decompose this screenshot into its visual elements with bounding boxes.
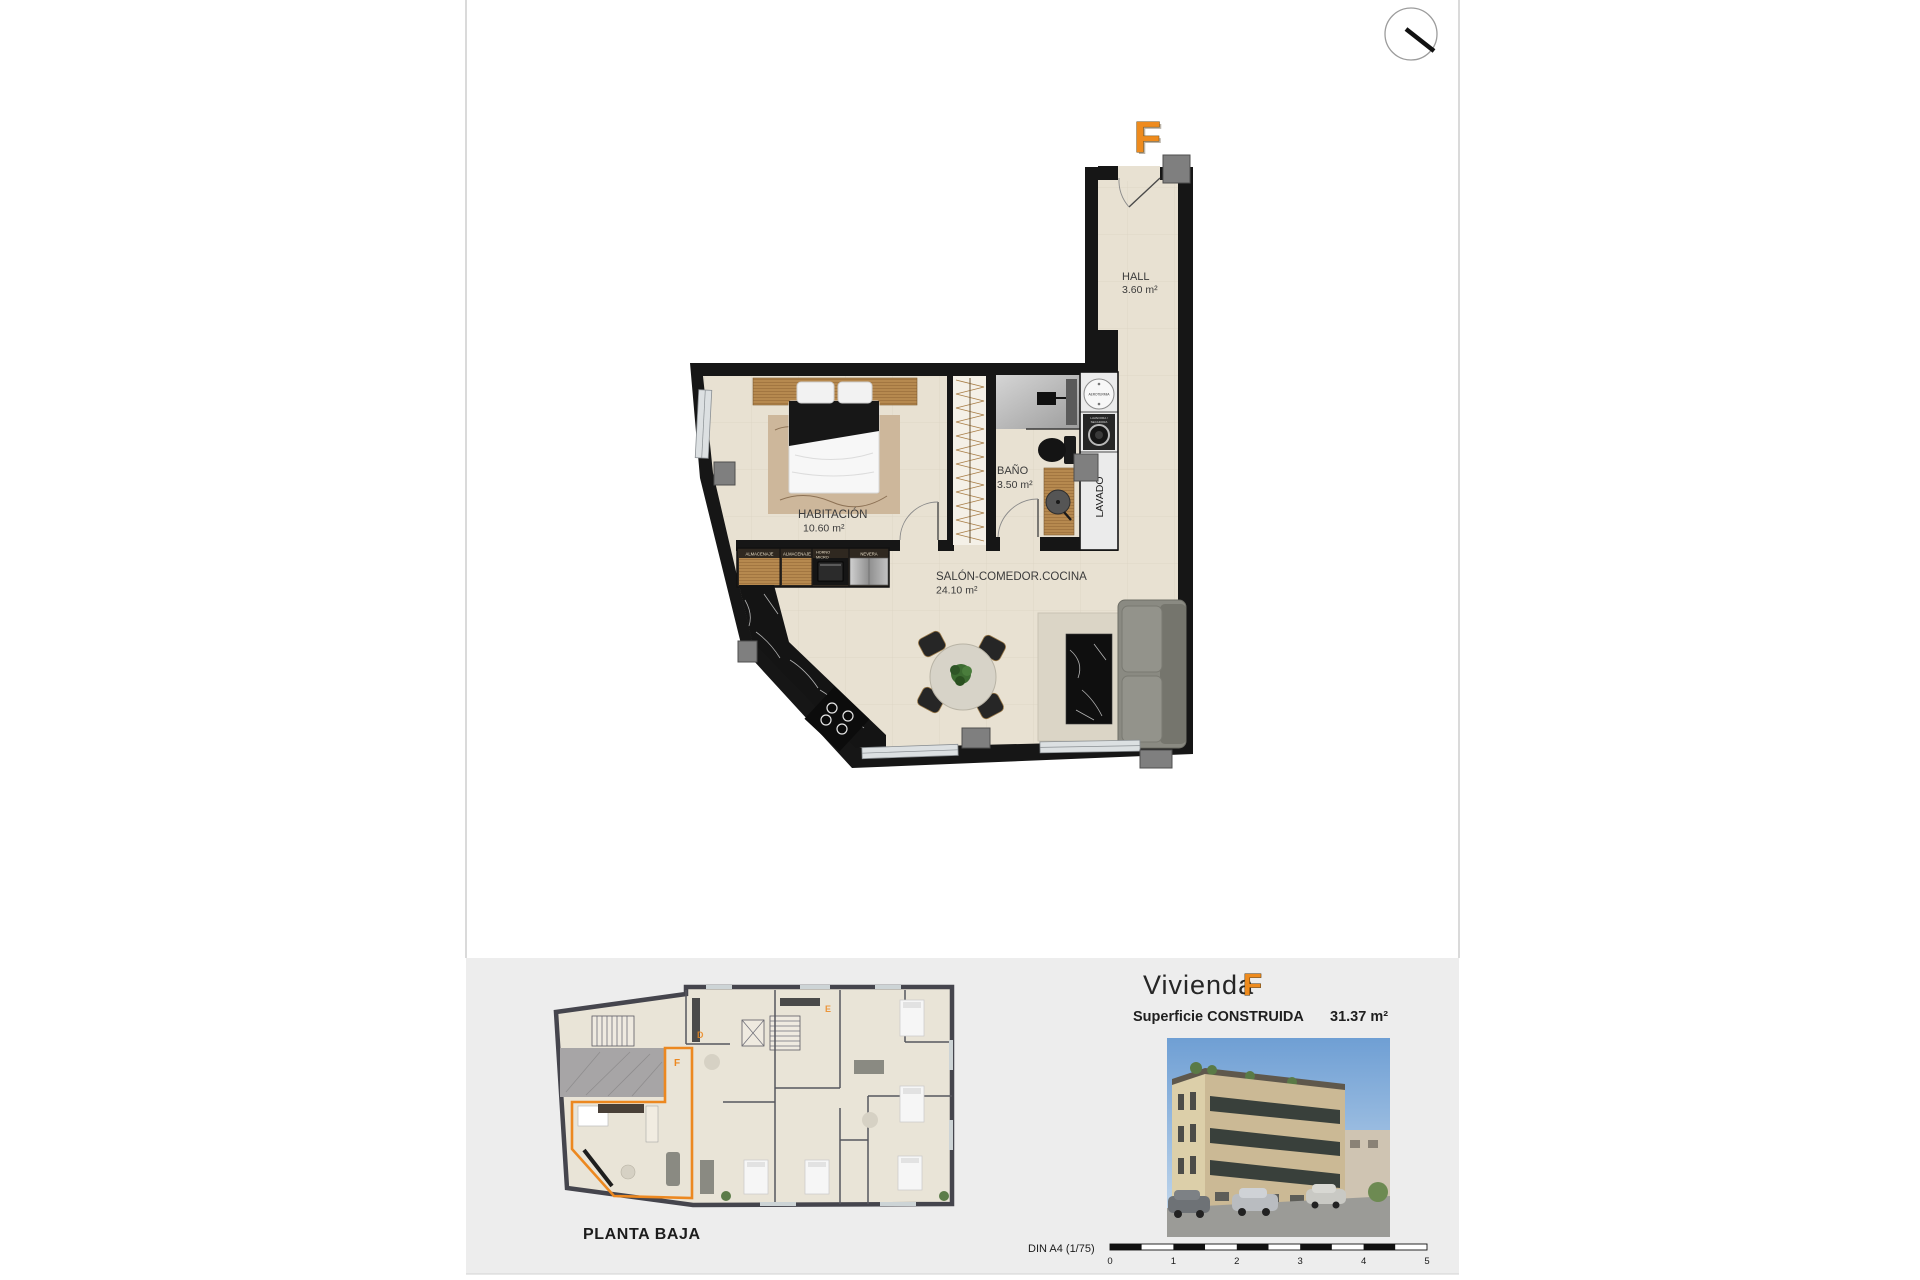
washer-dryer-unit: LAVADORA / SECADORA (1083, 414, 1115, 450)
bedroom-furniture (753, 378, 917, 514)
pillar-diagonal (738, 641, 757, 662)
scale-tick: 4 (1361, 1256, 1366, 1267)
aerotermia-unit: AEROTERMIA (1084, 379, 1114, 409)
pillar-top-right (1163, 155, 1190, 183)
wardrobe-right-wall (986, 376, 996, 551)
scale-tick: 5 (1424, 1256, 1429, 1267)
scale-tick: 1 (1171, 1256, 1176, 1267)
sheet-canvas: AEROTERMIA LAVADORA / SECADORA LAVADO (0, 0, 1920, 1280)
unit-letter-footer: F (1243, 967, 1262, 1002)
svg-text:F: F (1134, 113, 1161, 162)
shower-column (1066, 379, 1077, 425)
kitchen-cabinets: ALMACENAJE ALMACENAJE HORNO MICRO NEVERA (737, 548, 889, 587)
unit-letter-main: F F (1134, 113, 1163, 164)
bath-wall-stub (986, 537, 1000, 551)
plan-sheet: AEROTERMIA LAVADORA / SECADORA LAVADO (0, 0, 1920, 1280)
hall-area: 3.60 m² (1122, 284, 1158, 296)
surface-label: Superficie CONSTRUIDA (1133, 1009, 1304, 1025)
hall-top-wall-stub (1098, 166, 1118, 180)
shower-head-icon (1037, 392, 1056, 405)
building-photo (1167, 1038, 1390, 1237)
mini-letter-e: E (825, 1004, 831, 1014)
cabinet-label-3a: HORNO (816, 551, 830, 555)
mini-plan-title: PLANTA BAJA (583, 1226, 701, 1243)
pillar-laundry (1074, 454, 1098, 481)
mini-letter-f: F (674, 1058, 680, 1069)
north-arrow-icon (1385, 8, 1437, 60)
bed (789, 382, 879, 493)
wardrobe (953, 376, 986, 545)
living-label: SALÓN-COMEDOR.COCINA (936, 570, 1087, 583)
living-area: 24.10 m² (936, 585, 978, 597)
aerotermia-label: AEROTERMIA (1088, 393, 1110, 397)
pillow (838, 382, 872, 403)
hall-wall-pier (1092, 330, 1118, 378)
cabinet-storage-2 (782, 558, 812, 585)
wardrobe-left-wall (947, 376, 954, 545)
pillar-left (714, 462, 735, 485)
cabinet-label-2: ALMACENAJE (783, 552, 811, 557)
main-floor-plan: AEROTERMIA LAVADORA / SECADORA LAVADO (690, 113, 1193, 768)
scale-segments (1110, 1244, 1427, 1250)
bath-label: BAÑO (997, 464, 1029, 477)
living-furniture (1038, 600, 1186, 748)
cabinet-label-4: NEVERA (860, 552, 877, 557)
washer-label-2: SECADORA (1091, 420, 1108, 424)
scale-tick: 3 (1298, 1256, 1303, 1267)
coffee-table (1066, 634, 1112, 724)
photo-window-bands (1210, 1096, 1340, 1188)
bath-area: 3.50 m² (997, 479, 1033, 491)
vanity-sink (1044, 468, 1074, 535)
scale-label: DIN A4 (1/75) (1028, 1243, 1095, 1255)
mini-overview-plan: F D E (556, 985, 953, 1206)
mini-letter-d: D (697, 1030, 704, 1040)
pillar-bottom-center (962, 728, 990, 748)
scale-tick: 2 (1234, 1256, 1239, 1267)
cabinet-storage-1 (739, 558, 780, 585)
hall-label: HALL (1122, 271, 1150, 283)
surface-value: 31.37 m² (1330, 1009, 1388, 1025)
scale-tick: 0 (1107, 1256, 1112, 1267)
mini-patio (560, 1048, 665, 1097)
laundry-room-label: LAVADO (1094, 476, 1106, 517)
bedroom-label: HABITACIÓN (798, 508, 867, 521)
cabinet-label-3b: MICRO (816, 556, 829, 560)
unit-word: Vivienda (1143, 970, 1254, 1000)
pillow (797, 382, 834, 403)
cabinet-label-1: ALMACENAJE (746, 552, 774, 557)
pillar-bottom-right (1140, 750, 1172, 768)
sofa (1118, 600, 1186, 748)
bedroom-area: 10.60 m² (803, 523, 845, 535)
